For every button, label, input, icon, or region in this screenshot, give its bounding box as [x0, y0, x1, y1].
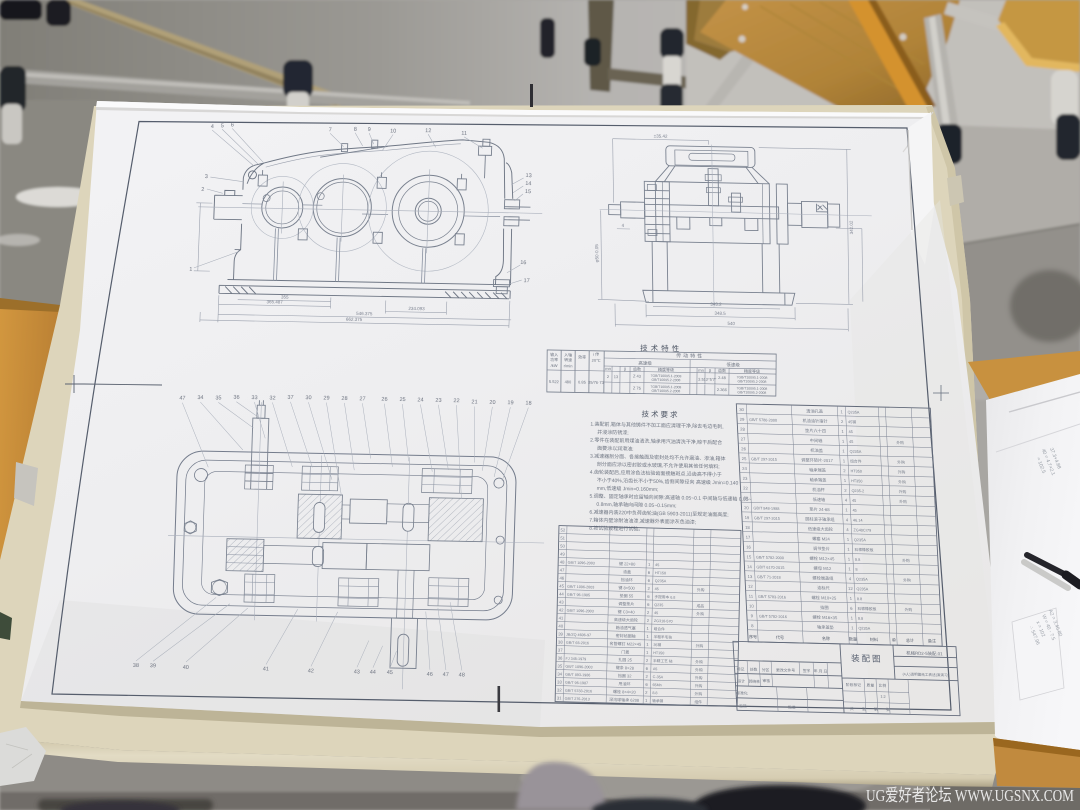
- svg-text:Q235A: Q235A: [854, 538, 866, 542]
- svg-text:35: 35: [215, 395, 221, 401]
- svg-text:40: 40: [558, 623, 563, 628]
- svg-text:HT350: HT350: [851, 479, 863, 483]
- svg-text:29: 29: [323, 395, 329, 401]
- svg-text:31: 31: [557, 695, 562, 700]
- svg-text:阶段标记: 阶段标记: [846, 682, 862, 687]
- svg-text:2: 2: [201, 187, 204, 193]
- svg-text:20: 20: [489, 400, 495, 406]
- svg-text:23: 23: [435, 398, 441, 404]
- svg-text:45: 45: [849, 440, 853, 444]
- svg-text:65Mn: 65Mn: [652, 683, 661, 687]
- svg-text:φ50·0.05: φ50·0.05: [594, 244, 599, 263]
- svg-text:箱油透气塞: 箱油透气塞: [616, 624, 636, 631]
- svg-text:甩油环: 甩油环: [618, 680, 630, 686]
- svg-text:22: 22: [453, 398, 459, 404]
- svg-text:门盖: 门盖: [621, 648, 629, 654]
- svg-text:12: 12: [425, 128, 431, 134]
- svg-text:42: 42: [308, 668, 314, 674]
- svg-text:37: 37: [287, 395, 293, 401]
- svg-text:10: 10: [390, 128, 396, 134]
- svg-text:密封毡圈轴: 密封毡圈轴: [616, 632, 636, 639]
- svg-text:GB/T 297-2015: GB/T 297-2015: [751, 457, 777, 462]
- svg-text:50: 50: [560, 543, 565, 548]
- svg-text:19: 19: [507, 400, 513, 406]
- svg-text:标记: 标记: [737, 666, 745, 671]
- svg-text:4: 4: [211, 124, 214, 130]
- svg-text:GB/T 276-2013: GB/T 276-2013: [565, 697, 590, 702]
- svg-text:齿数: 齿数: [718, 367, 726, 373]
- svg-text:外购: 外购: [899, 499, 907, 504]
- svg-text:GB/T 65-2016: GB/T 65-2016: [566, 641, 589, 646]
- svg-text:组件: 组件: [694, 699, 702, 704]
- svg-text:25: 25: [399, 397, 405, 403]
- svg-text:GB/T 5783-2016: GB/T 5783-2016: [758, 595, 786, 600]
- svg-text:48: 48: [560, 559, 565, 564]
- svg-text:垫圈 55: 垫圈 55: [620, 592, 634, 598]
- svg-text:662.375: 662.375: [346, 317, 363, 322]
- svg-text:3: 3: [205, 174, 208, 180]
- svg-text:第: 第: [874, 707, 878, 712]
- svg-text:34: 34: [197, 395, 203, 401]
- svg-text:47: 47: [443, 672, 449, 678]
- svg-text:43: 43: [354, 669, 360, 675]
- svg-text:38: 38: [133, 663, 139, 669]
- svg-text:35钢: 35钢: [653, 642, 661, 647]
- svg-text:47: 47: [179, 396, 185, 402]
- svg-text:234.093: 234.093: [408, 306, 425, 311]
- svg-text:齿数: 齿数: [633, 365, 641, 371]
- svg-text:GB/T10095.2-2008: GB/T10095.2-2008: [737, 390, 766, 395]
- svg-text:装配图: 装配图: [851, 653, 883, 664]
- svg-text:13: 13: [525, 173, 531, 179]
- svg-text:GB/T 5782-2016: GB/T 5782-2016: [759, 614, 787, 619]
- svg-text:工艺: 工艺: [739, 703, 747, 708]
- svg-text:540: 540: [727, 321, 735, 326]
- svg-text:45: 45: [559, 583, 564, 588]
- svg-text:34: 34: [557, 671, 562, 676]
- svg-text:20℃: 20℃: [592, 358, 601, 363]
- svg-text:8.8: 8.8: [855, 558, 860, 562]
- svg-text:2.48: 2.48: [718, 375, 727, 380]
- svg-text:2.366: 2.366: [717, 387, 728, 392]
- svg-text:342.02: 342.02: [849, 220, 854, 234]
- svg-text:GB/T 95-1985: GB/T 95-1985: [567, 593, 590, 598]
- svg-text:42: 42: [559, 607, 564, 612]
- svg-text:挡油环: 挡油环: [621, 576, 633, 582]
- svg-text:螺栓 8×4×20: 螺栓 8×4×20: [613, 688, 637, 695]
- svg-text:张: 张: [886, 707, 890, 712]
- svg-text:外购: 外购: [695, 667, 703, 672]
- svg-text:7: 7: [329, 127, 332, 133]
- svg-text:高速级大齿轮: 高速级大齿轮: [614, 616, 638, 623]
- svg-text:处数: 处数: [750, 667, 758, 672]
- svg-text:技术要求: 技术要求: [641, 409, 679, 420]
- svg-text:GB/T 848-1988: GB/T 848-1988: [753, 506, 779, 511]
- svg-text:17: 17: [523, 278, 529, 284]
- svg-text:Q235A: Q235A: [856, 587, 868, 591]
- svg-text:外购: 外购: [904, 607, 912, 612]
- svg-text:GB/T10095.2-2008: GB/T10095.2-2008: [738, 379, 767, 384]
- svg-text:深沟球轴承 6208: 深沟球轴承 6208: [609, 696, 640, 703]
- svg-text:26: 26: [381, 397, 387, 403]
- svg-text:年.月.日: 年.月.日: [814, 668, 828, 673]
- svg-text:Q235A: Q235A: [655, 579, 667, 583]
- svg-text:外购: 外购: [695, 675, 703, 680]
- svg-text:5.522: 5.522: [549, 379, 560, 384]
- svg-text:面要涂以润滑油;: 面要涂以润滑油;: [597, 445, 633, 453]
- svg-text:张: 张: [862, 706, 866, 711]
- svg-text:GB/T 1096-2003: GB/T 1096-2003: [567, 585, 594, 590]
- svg-text:1: 1: [189, 267, 192, 273]
- svg-text:GB/T 95-1987: GB/T 95-1987: [565, 681, 588, 686]
- svg-text:C-35A: C-35A: [653, 675, 664, 679]
- svg-text:半精工艺 毡: 半精工艺 毡: [653, 658, 673, 664]
- svg-text:Z 75: Z 75: [633, 385, 642, 390]
- svg-text:半粗羊毛毡: 半粗羊毛毡: [654, 634, 673, 640]
- svg-text:41: 41: [263, 666, 269, 672]
- svg-text:14: 14: [525, 181, 531, 187]
- svg-text:35: 35: [558, 663, 563, 668]
- svg-text:21: 21: [471, 399, 477, 405]
- svg-text:UG爱好者论坛 WWW.UGSNX.COM: UG爱好者论坛 WWW.UGSNX.COM: [866, 786, 1074, 805]
- svg-text:46: 46: [427, 672, 433, 678]
- svg-text:外购: 外购: [695, 659, 703, 664]
- svg-text:45: 45: [387, 670, 393, 676]
- svg-text:GB/T10095.2-2008: GB/T10095.2-2008: [652, 378, 681, 383]
- svg-text:52: 52: [560, 527, 565, 532]
- svg-text:比例: 比例: [878, 683, 886, 688]
- svg-text:GB/T 5782-2000: GB/T 5782-2000: [756, 556, 784, 561]
- svg-text:ZG310-570: ZG310-570: [654, 619, 673, 624]
- svg-text:12°5'7": 12°5'7": [704, 377, 717, 382]
- svg-text:精度等级: 精度等级: [744, 367, 760, 373]
- svg-text:43: 43: [559, 599, 564, 604]
- svg-text:15: 15: [525, 189, 531, 195]
- svg-text:外购: 外购: [695, 683, 703, 688]
- svg-text:36: 36: [558, 655, 563, 660]
- svg-text:外购: 外购: [898, 479, 906, 484]
- svg-text:37: 37: [558, 647, 563, 652]
- svg-text:外购: 外购: [899, 489, 907, 494]
- svg-text:40: 40: [183, 665, 189, 671]
- svg-text:转速: 转速: [564, 356, 572, 362]
- svg-text:365.487: 365.487: [266, 299, 283, 304]
- svg-text:HT150: HT150: [655, 571, 666, 575]
- svg-text:GB/T 71-2018: GB/T 71-2018: [757, 575, 781, 580]
- svg-text:Q235A: Q235A: [849, 450, 861, 454]
- svg-text:48: 48: [459, 672, 465, 678]
- svg-text:8.8: 8.8: [858, 617, 863, 621]
- svg-text:18: 18: [525, 401, 531, 407]
- svg-text:Z 43: Z 43: [633, 373, 642, 378]
- svg-text:油盖: 油盖: [623, 568, 631, 574]
- svg-text:33: 33: [557, 679, 562, 684]
- svg-text:调整垫片: 调整垫片: [618, 600, 634, 606]
- svg-text:GB/T 297-2015: GB/T 297-2015: [754, 516, 780, 521]
- svg-text:/kW: /kW: [551, 363, 558, 368]
- svg-text:石棉橡胶板: 石棉橡胶板: [857, 606, 876, 611]
- svg-text:i 传: i 传: [593, 351, 599, 357]
- svg-text:16: 16: [520, 260, 526, 266]
- svg-text:分区: 分区: [762, 667, 770, 672]
- svg-text:并浸涂防锈漆;: 并浸涂防锈漆;: [597, 429, 628, 437]
- svg-text:功率: 功率: [550, 356, 558, 362]
- svg-text:45: 45: [655, 587, 659, 591]
- svg-text:标准化: 标准化: [736, 690, 748, 695]
- svg-text:GB/T 6170-2015: GB/T 6170-2015: [756, 565, 784, 570]
- svg-text:5: 5: [221, 123, 224, 129]
- svg-text:组合件: 组合件: [850, 458, 862, 463]
- svg-text:键 8×500: 键 8×500: [618, 584, 635, 590]
- svg-text:GB/T 5783-2016: GB/T 5783-2016: [565, 689, 592, 694]
- svg-text:手提用本 6.8: 手提用本 6.8: [654, 594, 675, 600]
- svg-text:±35.42: ±35.42: [654, 134, 668, 139]
- svg-text:GB/T 1096-2003: GB/T 1096-2003: [565, 665, 592, 670]
- svg-text:HT350: HT350: [850, 469, 862, 473]
- svg-text:39: 39: [558, 631, 563, 636]
- svg-text:6: 6: [231, 122, 234, 128]
- svg-text:8: 8: [855, 568, 857, 572]
- svg-text:Q235-2: Q235-2: [851, 489, 864, 493]
- svg-text:28: 28: [341, 396, 347, 402]
- svg-text:JB/ZQ 4606-97: JB/ZQ 4606-97: [566, 633, 591, 638]
- svg-text:外购: 外购: [697, 587, 705, 592]
- svg-text:8: 8: [354, 127, 357, 133]
- svg-text:8.按试验规程进行试验。: 8.按试验规程进行试验。: [589, 525, 643, 533]
- svg-text:外购: 外购: [695, 691, 703, 696]
- svg-text:45钢: 45钢: [848, 419, 856, 424]
- svg-text:9: 9: [368, 127, 371, 133]
- svg-text:38: 38: [558, 639, 563, 644]
- svg-text:HT150: HT150: [653, 651, 664, 655]
- svg-text:32: 32: [269, 395, 275, 401]
- svg-text:挡圈 32: 挡圈 32: [618, 672, 632, 678]
- svg-text:质量: 质量: [866, 682, 874, 687]
- svg-text:键 C3×40: 键 C3×40: [618, 608, 636, 614]
- svg-text:44: 44: [559, 591, 564, 596]
- svg-text:外购: 外购: [696, 611, 704, 616]
- svg-text:33: 33: [251, 395, 257, 401]
- svg-text:44: 44: [370, 670, 376, 676]
- svg-text:27: 27: [359, 396, 365, 402]
- svg-text:45: 45: [654, 611, 658, 615]
- svg-text:共: 共: [850, 706, 854, 711]
- svg-text:扎圆 25: 扎圆 25: [618, 656, 632, 662]
- svg-text:348.5: 348.5: [714, 311, 726, 316]
- svg-text:FJ 345-1979: FJ 345-1979: [566, 657, 587, 662]
- svg-text:546.375: 546.375: [356, 311, 373, 316]
- svg-text:45: 45: [848, 430, 852, 434]
- svg-text:名管螺钉 M22×45: 名管螺钉 M22×45: [610, 640, 643, 647]
- svg-text:组合件: 组合件: [654, 626, 665, 631]
- svg-text:外购: 外购: [903, 577, 911, 582]
- svg-text:GB/T10095.2-2008: GB/T10095.2-2008: [651, 389, 680, 394]
- svg-text:外购: 外购: [896, 440, 904, 445]
- svg-text:46: 46: [559, 575, 564, 580]
- svg-text:GB/T 5780-2000: GB/T 5780-2000: [749, 418, 777, 423]
- svg-text:Q235A: Q235A: [848, 410, 860, 414]
- svg-text:GB/T 1096-2003: GB/T 1096-2003: [568, 561, 595, 566]
- svg-text:Q235A: Q235A: [858, 626, 870, 630]
- svg-text:24: 24: [417, 397, 423, 403]
- svg-text:GB/T 893-1986: GB/T 893-1986: [565, 673, 590, 678]
- svg-text:外购: 外购: [696, 643, 704, 648]
- svg-text:36: 36: [233, 395, 239, 401]
- svg-text:32: 32: [557, 687, 562, 692]
- svg-text:45: 45: [852, 499, 856, 503]
- svg-text:8.8: 8.8: [857, 597, 862, 601]
- svg-text:35/76·73: 35/76·73: [588, 380, 605, 385]
- svg-text:传动特性: 传动特性: [676, 352, 704, 360]
- svg-text:成品: 成品: [696, 603, 704, 608]
- svg-text:mn: mn: [698, 368, 704, 373]
- svg-text:480: 480: [565, 379, 572, 384]
- svg-text:外购: 外购: [898, 469, 906, 474]
- svg-text:0.85: 0.85: [578, 380, 587, 385]
- svg-text:343.2: 343.2: [710, 302, 722, 307]
- svg-text:41: 41: [559, 615, 564, 620]
- svg-text:11: 11: [461, 131, 467, 137]
- svg-text:45: 45: [655, 563, 659, 567]
- svg-text:效率: 效率: [578, 354, 586, 360]
- svg-text:45: 45: [852, 509, 856, 513]
- svg-text:外购: 外购: [897, 460, 905, 465]
- svg-text:39: 39: [150, 663, 156, 669]
- svg-text:Q235A: Q235A: [856, 577, 868, 581]
- svg-text:8.8: 8.8: [652, 691, 657, 695]
- svg-text:键条 8×28: 键条 8×28: [616, 664, 635, 671]
- svg-text:30: 30: [305, 395, 311, 401]
- svg-text:轴承钢: 轴承钢: [652, 698, 663, 703]
- svg-text:ZG40Cr79: ZG40Cr79: [853, 528, 871, 532]
- svg-text:批准: 批准: [788, 705, 796, 710]
- svg-text:设计: 设计: [737, 678, 745, 683]
- svg-text:mn: mn: [605, 366, 611, 371]
- svg-text:49: 49: [560, 551, 565, 556]
- svg-text:键 22×80: 键 22×80: [619, 560, 636, 566]
- svg-text:Q235: Q235: [654, 603, 663, 607]
- svg-text:更改文件号: 更改文件号: [776, 667, 795, 672]
- svg-text:审核: 审核: [762, 678, 770, 683]
- svg-text:外购: 外购: [902, 558, 910, 563]
- svg-text:石棉橡胶板: 石棉橡胶板: [854, 547, 873, 552]
- svg-text:GB/T 1096-2003: GB/T 1096-2003: [567, 609, 594, 614]
- svg-text:A5: A5: [653, 667, 658, 671]
- svg-text:51: 51: [560, 535, 565, 540]
- svg-text:47: 47: [560, 567, 565, 572]
- svg-text:1:2: 1:2: [880, 695, 886, 699]
- svg-text:签字: 签字: [803, 668, 811, 673]
- svg-text:郭晓林: 郭晓林: [748, 679, 760, 684]
- svg-text:r/min: r/min: [564, 363, 573, 368]
- svg-text:mm,低速级 Jmin=0.160mm;: mm,低速级 Jmin=0.160mm;: [597, 485, 659, 493]
- svg-text:46.14: 46.14: [853, 518, 863, 522]
- svg-text:精度等级: 精度等级: [658, 366, 674, 372]
